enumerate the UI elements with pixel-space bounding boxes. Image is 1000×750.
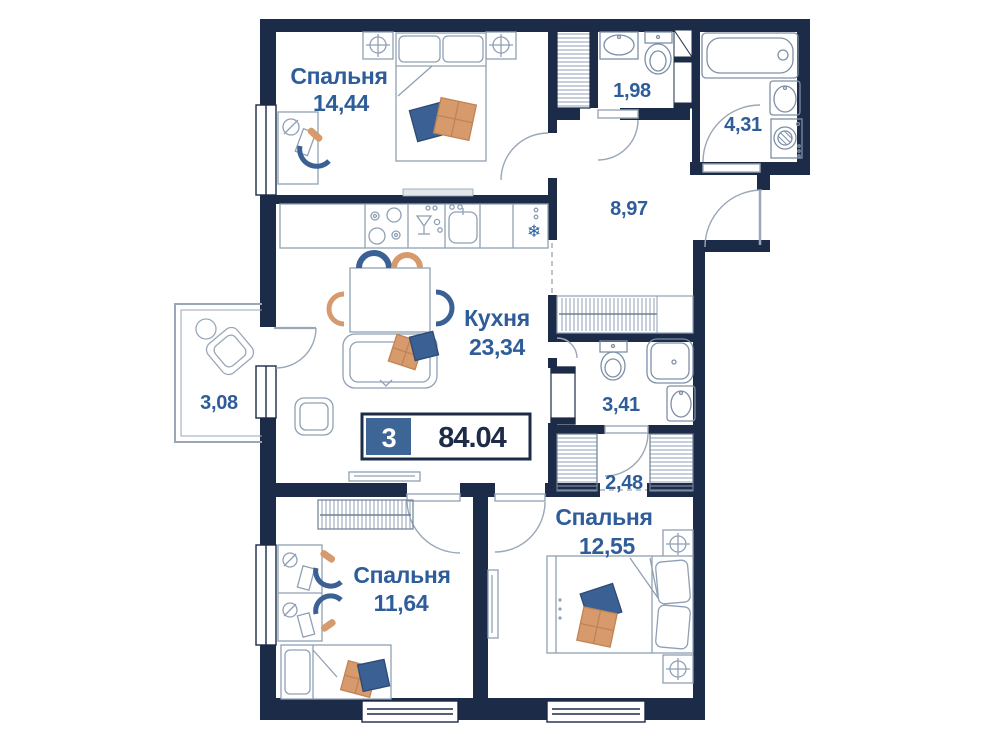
label-closet-area: 2,48	[605, 472, 643, 494]
floor-plan-page: ❄	[0, 0, 1000, 750]
wardrobe-closet-left	[557, 434, 597, 491]
single-bed	[281, 645, 391, 699]
label-bedroom-top-area: 14,44	[313, 90, 370, 116]
label-bathroom-small-area: 3,41	[602, 394, 640, 416]
window-bedroom-right-bottom	[547, 701, 645, 722]
window-balcony	[256, 366, 276, 418]
label-wc-area: 1,98	[613, 80, 651, 102]
window-bedroom-left-bottom	[362, 701, 458, 722]
tv-bedroom-top	[403, 189, 473, 196]
label-hallway-area: 8,97	[610, 198, 648, 220]
tv-kitchen	[349, 472, 420, 481]
page-background	[0, 0, 1000, 750]
label-bedroom-left-name: Спальня	[353, 562, 450, 588]
window-bedroom-top	[256, 105, 276, 195]
double-desk	[278, 545, 322, 641]
sofa	[343, 331, 439, 388]
svg-text:❄: ❄	[527, 222, 541, 241]
wardrobe-closet-right	[650, 434, 693, 491]
tv-bedroom-right	[488, 570, 498, 638]
label-bedroom-top-name: Спальня	[290, 63, 387, 89]
pillow-blue	[358, 659, 390, 691]
duct-bathroom-small	[551, 367, 575, 424]
label-bedroom-right-name: Спальня	[555, 504, 652, 530]
duct-wc	[674, 30, 692, 108]
wardrobe-bedroom-left	[318, 500, 413, 529]
kitchen-counter: ❄	[280, 204, 548, 248]
shaft-top	[557, 31, 590, 108]
pillow-orange	[434, 98, 477, 141]
pillow-orange	[577, 607, 617, 647]
label-kitchen-name: Кухня	[464, 305, 530, 331]
label-kitchen-area: 23,34	[469, 334, 526, 360]
sofa-pillow-blue	[409, 331, 438, 360]
label-bedroom-right-area: 12,55	[579, 533, 636, 559]
double-bed	[396, 33, 486, 161]
label-balcony-area: 3,08	[200, 392, 238, 414]
badge-total-area: 84.04	[438, 422, 506, 454]
label-bathroom-area: 4,31	[724, 114, 762, 136]
badge-rooms-count: 3	[382, 423, 397, 453]
floor-plan: ❄	[0, 0, 1000, 750]
window-bedroom-left-side	[256, 545, 276, 645]
double-bed-right	[547, 556, 693, 653]
wardrobe-hallway	[557, 296, 693, 333]
label-bedroom-left-area: 11,64	[374, 590, 429, 616]
area-badge: 3 84.04	[362, 414, 530, 459]
armchair-kitchen	[295, 398, 333, 435]
